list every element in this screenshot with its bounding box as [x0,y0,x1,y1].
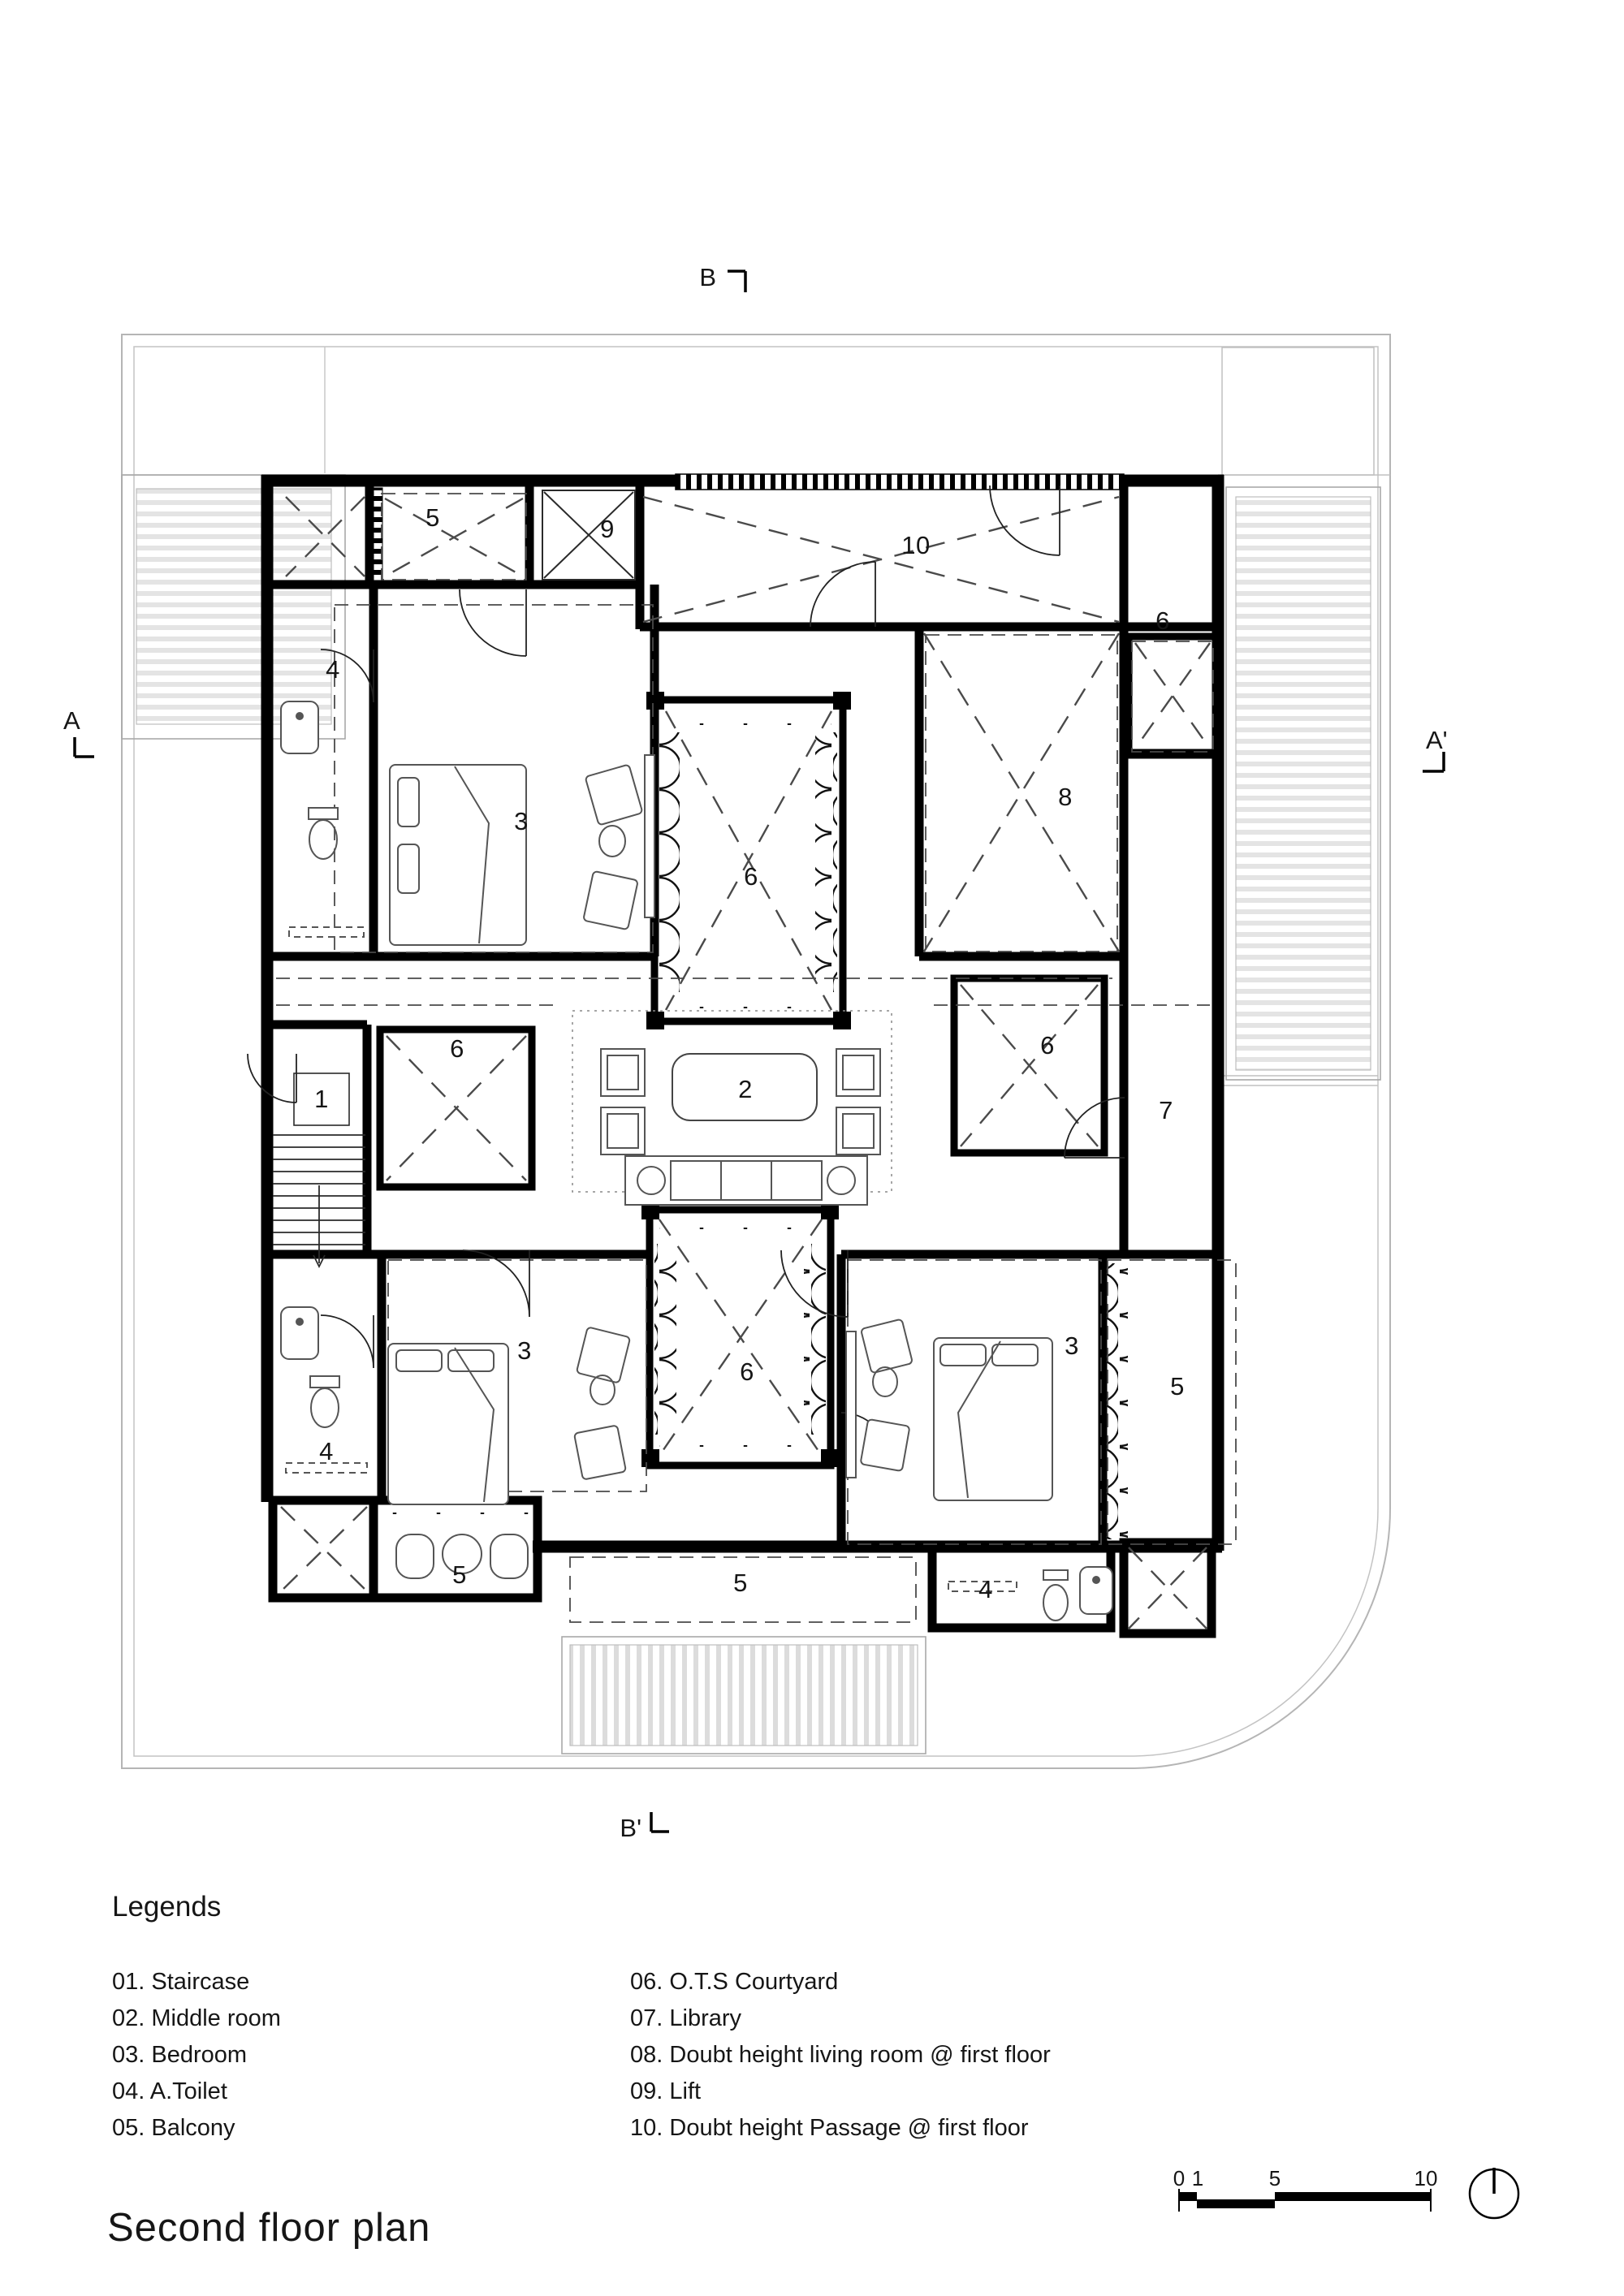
toilet-top-left-fixtures [281,701,338,859]
room-label-bedroom-bottom-right: 3 [1065,1331,1079,1360]
legend-heading: Legends [112,1891,221,1923]
room-label-balcony-top: 5 [425,503,440,532]
room-label-courtyard-right: 6 [1040,1031,1055,1060]
legend-item: 06. O.T.S Courtyard [630,1969,838,1995]
room-label-toilet-top-left: 4 [326,655,340,684]
legend-item: 08. Doubt height living room @ first flo… [630,2042,1051,2068]
section-marker-b-prime-bracket [651,1812,669,1832]
legend-item: 10. Doubt height Passage @ first floor [630,2115,1029,2141]
scale-tick-1: 1 [1192,2166,1203,2190]
room-label-courtyard-left: 6 [450,1034,464,1063]
scale-tick-0: 0 [1173,2166,1185,2190]
room-label-staircase: 1 [314,1085,329,1113]
balcony-right-colonnade [1106,1263,1128,1539]
toilet-bottom-right-fixtures [1043,1567,1112,1621]
legend-item: 05. Balcony [112,2115,235,2141]
legend-item: 01. Staircase [112,1969,249,1995]
room-label-living: 8 [1058,783,1073,811]
middle-room-set [601,1049,880,1205]
section-marker-a-prime-bracket [1423,752,1444,771]
scale-bar: 0 1 5 10 [1173,2166,1438,2212]
room-label-bedroom-top: 3 [514,807,529,835]
room-label-lift: 9 [600,515,615,543]
legend-item: 09. Lift [630,2078,701,2104]
balcony-colonnade [378,1504,533,1526]
tv-console-top [645,755,654,917]
drawing-sheet: 5 9 10 6 4 3 6 8 1 6 2 6 7 3 6 3 5 4 5 5… [0,0,1624,2296]
room-label-courtyard-lower: 6 [740,1357,754,1386]
scale-tick-10: 10 [1415,2166,1438,2190]
floor-plan-drawing: 5 9 10 6 4 3 6 8 1 6 2 6 7 3 6 3 5 4 5 5… [0,0,1624,2296]
section-marker-a: A [63,706,80,735]
legend-item: 03. Bedroom [112,2042,247,2068]
bed-bottom-right [934,1338,1052,1500]
room-label-middle-room: 2 [738,1075,753,1103]
scale-tick-5: 5 [1269,2166,1281,2190]
passage-railing [676,474,1124,490]
section-marker-a-bracket [75,737,94,757]
bed-top [390,765,526,945]
tv-console-bottom [846,1331,856,1478]
page-title: Second floor plan [107,2206,430,2250]
section-marker-b-bracket [728,271,745,292]
room-label-balcony-center: 5 [733,1569,748,1597]
bed-bottom-left [388,1344,508,1504]
legend-item: 07. Library [630,2005,742,2031]
north-arrow-icon [1470,2168,1518,2218]
legend-item: 02. Middle room [112,2005,281,2031]
room-label-passage: 10 [901,531,930,559]
room-label-balcony-small: 5 [452,1560,467,1589]
room-label-courtyard-upper: 6 [744,862,758,891]
room-label-bedroom-bottom-left: 3 [517,1336,532,1365]
room-label-library: 7 [1159,1096,1173,1124]
room-label-courtyard-top-right: 6 [1155,606,1170,635]
room-label-balcony-right: 5 [1170,1372,1185,1400]
section-marker-b-prime: B' [620,1814,641,1842]
room-label-toilet-bottom-right: 4 [978,1575,993,1603]
legend: Legends 01. Staircase 02. Middle room 03… [112,1891,1051,2141]
room-label-toilet-bottom-left: 4 [319,1437,334,1465]
section-marker-a-prime: A' [1426,726,1448,754]
section-marker-b: B [699,263,716,291]
toilet-bottom-left-fixtures [281,1307,339,1427]
legend-item: 04. A.Toilet [112,2078,227,2104]
lift [542,490,635,580]
